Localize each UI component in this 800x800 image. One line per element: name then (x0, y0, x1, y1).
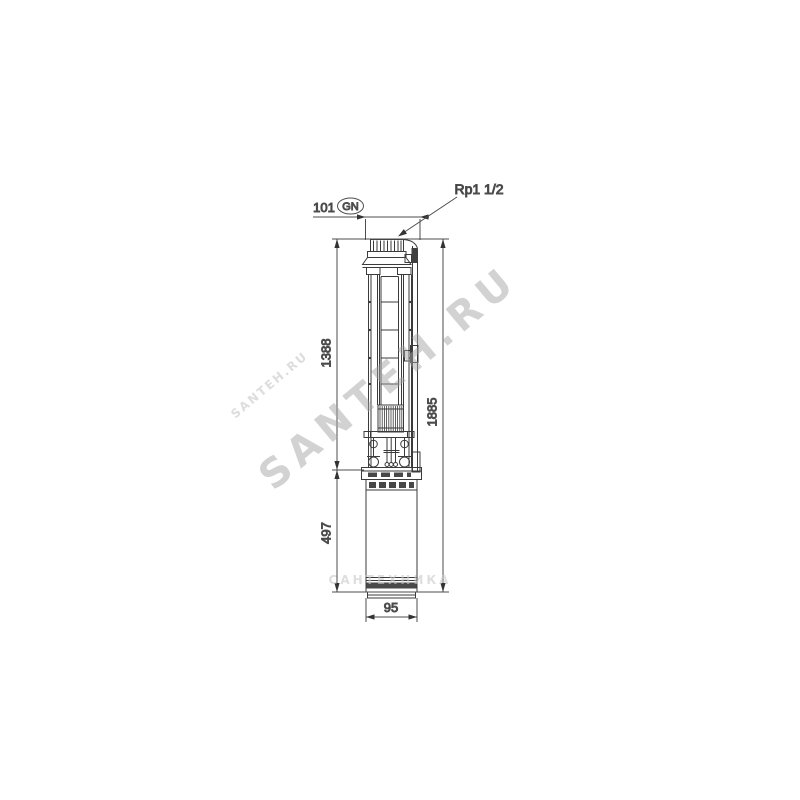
dim-497-label: 497 (319, 522, 334, 544)
watermark-fragment: SANTEH.RU (228, 349, 311, 421)
dim-1885-label: 1885 (425, 398, 440, 427)
dimension-diameter: 95 (366, 598, 417, 622)
dimension-total-length: 1885 (425, 239, 446, 592)
gn-label: GN (342, 201, 359, 213)
watermark-strip: САНТЕХНИКА (329, 573, 452, 587)
drawing-page: 101 GN Rp1 1/2 1388 497 (0, 0, 800, 800)
connection-label: Rp1 1/2 (454, 181, 503, 197)
dim-101-label: 101 (313, 200, 335, 215)
pump-dimensional-drawing: 101 GN Rp1 1/2 1388 497 (0, 0, 800, 800)
dim-95-label: 95 (384, 600, 398, 615)
dim-1388-label: 1388 (319, 339, 334, 368)
leader-arrow (398, 229, 407, 236)
connection-callout: Rp1 1/2 (398, 181, 504, 237)
discharge-thread (371, 240, 404, 252)
discharge-head (363, 252, 412, 275)
dimension-top-width: 101 GN (313, 198, 429, 240)
